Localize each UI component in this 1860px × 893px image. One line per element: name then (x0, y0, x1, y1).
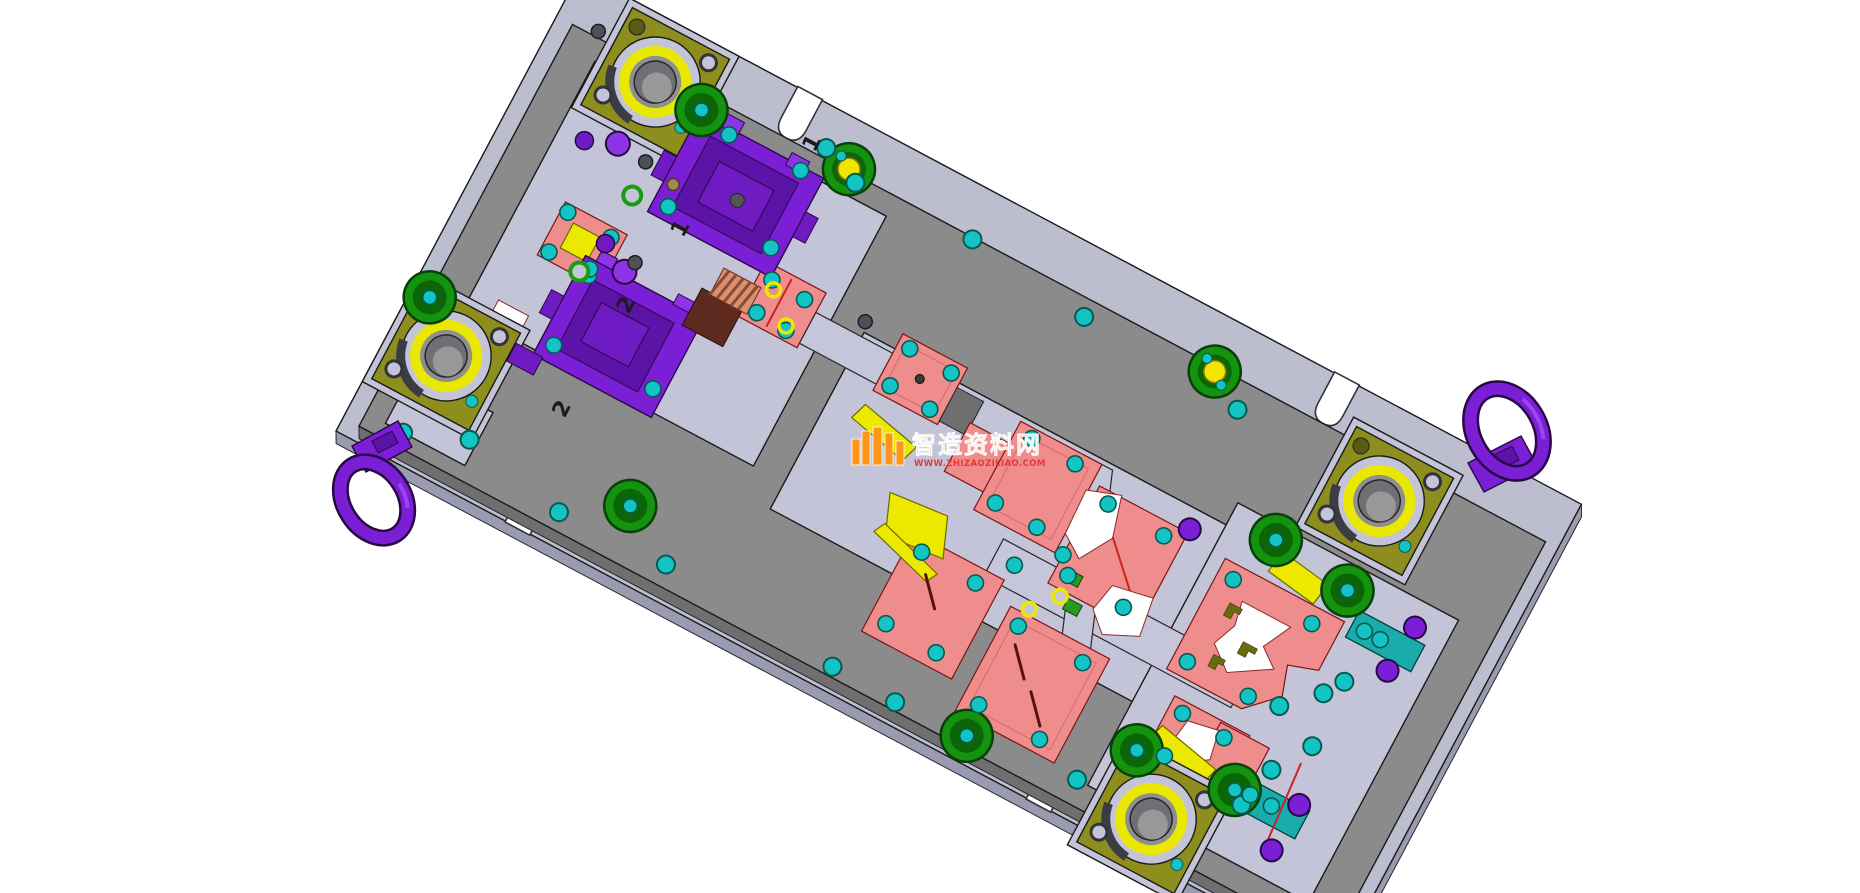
watermark-brand: 智造资料网 (912, 431, 1042, 459)
watermark-url: WWW.ZHIZAOZILIAO.COM (914, 459, 1046, 469)
watermark: 智造资料网 WWW.ZHIZAOZILIAO.COM (852, 427, 1046, 469)
cad-viewport[interactable]: 1122 智造资料网 WWW.ZHIZAOZILIAO.COM (0, 0, 1860, 893)
